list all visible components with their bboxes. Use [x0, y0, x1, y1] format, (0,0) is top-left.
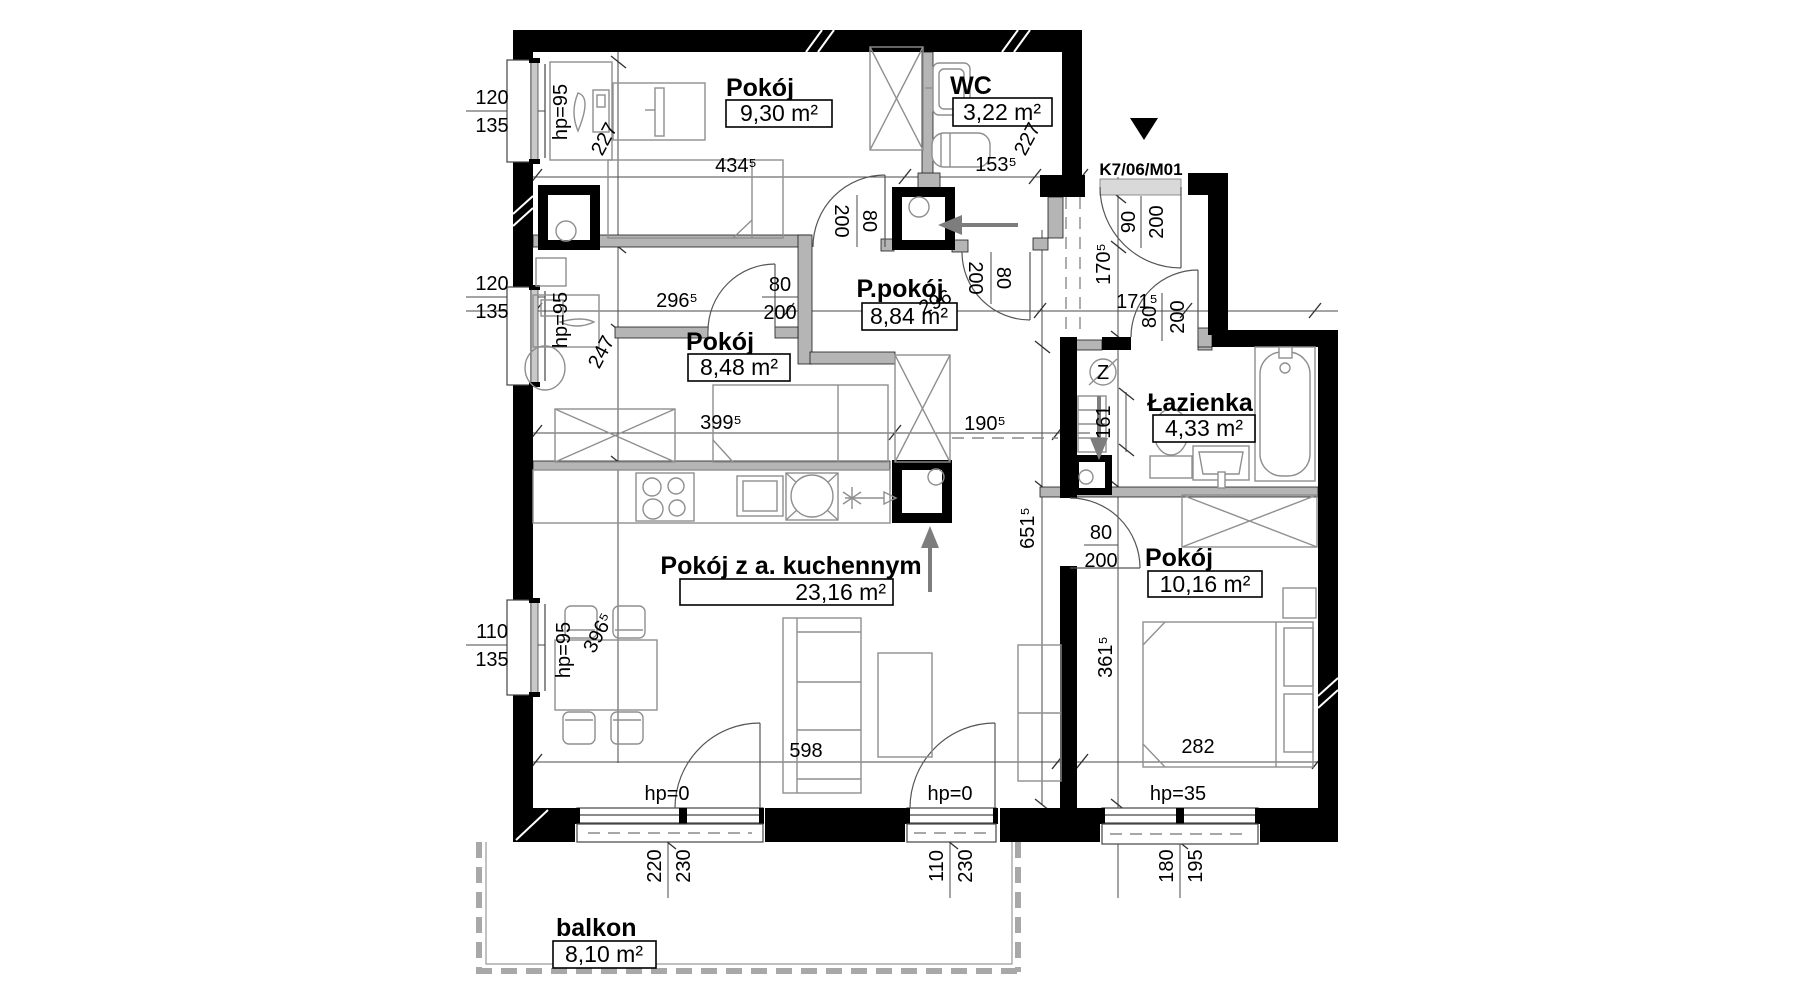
floor-plan-canvas: Z [0, 0, 1800, 1008]
svg-text:135: 135 [475, 301, 508, 323]
svg-text:110: 110 [926, 850, 948, 882]
door-room1-size-label: 80 200 [830, 195, 880, 247]
furniture-living [555, 606, 1061, 793]
svg-text:200: 200 [1167, 300, 1189, 333]
balcony-door-window-2 [905, 808, 998, 842]
balcony-door2-size-label: 110 230 [926, 849, 977, 882]
door-wc-size-label: 80 200 [964, 252, 1014, 304]
window2-size-label: 120 135 [475, 273, 508, 323]
room-label-living: Pokój z a. kuchennym 23,16 m² [660, 552, 921, 605]
svg-text:200: 200 [964, 261, 986, 294]
svg-text:200: 200 [763, 302, 796, 324]
dim-651: 651⁵ [1017, 507, 1039, 549]
room-label-wc: WC 3,22 m² [950, 72, 1052, 126]
svg-text:230: 230 [955, 849, 977, 882]
room-label-bedroom: Pokój 10,16 m² [1145, 544, 1262, 597]
window3-hp-label: hp=95 [553, 622, 575, 678]
bedroom-window [1100, 808, 1260, 844]
entrance-triangle-icon [1130, 118, 1158, 140]
svg-text:200: 200 [1146, 205, 1168, 238]
door-room2-size-label: 80 200 [762, 274, 798, 324]
shaft-hall [892, 187, 955, 250]
wardrobe-hall [895, 355, 950, 462]
kitchen-sink [786, 473, 838, 520]
room1-area: 9,30 m² [740, 100, 818, 126]
svg-text:80: 80 [1090, 522, 1112, 544]
svg-text:80: 80 [992, 267, 1014, 289]
window1-hp-label: hp=95 [550, 84, 572, 140]
wc-area: 3,22 m² [963, 99, 1041, 125]
living-name: Pokój z a. kuchennym [660, 552, 921, 580]
svg-text:220: 220 [644, 849, 666, 882]
room-label-bath: Łazienka 4,33 m² [1147, 389, 1255, 442]
window-left-2 [507, 285, 545, 387]
balcony-area: 8,10 m² [565, 941, 643, 967]
bedroom-window-size-label: 180 195 [1156, 849, 1207, 882]
svg-text:180: 180 [1156, 849, 1178, 882]
svg-text:195: 195 [1185, 849, 1207, 882]
balcony-door2-hp-label: hp=0 [927, 783, 972, 805]
gas-meter-icon: Z [1089, 359, 1117, 385]
svg-text:200: 200 [1084, 550, 1117, 572]
window3-size-label: 110 135 [475, 621, 508, 671]
room-label-balcony: balkon 8,10 m² [553, 914, 656, 968]
flow-arrow-up-icon [921, 526, 939, 592]
bath-name: Łazienka [1147, 389, 1254, 417]
dim-170: 170⁵ [1093, 243, 1115, 285]
dim-399: 399⁵ [700, 412, 742, 434]
sofa [783, 618, 861, 793]
svg-text:120: 120 [475, 87, 508, 109]
door-entrance-size-label: 90 200 [1118, 196, 1168, 248]
bedroom-name: Pokój [1145, 544, 1213, 572]
wardrobe-room2 [555, 409, 675, 462]
dim-153: 153⁵ [975, 154, 1017, 176]
door-bedroom-size-label: 80 200 [1084, 522, 1118, 572]
svg-text:80: 80 [769, 274, 791, 296]
dim-161: 161 [1093, 405, 1115, 438]
z-symbol: Z [1097, 362, 1109, 384]
dim-296p: 296⁵ [656, 290, 698, 312]
dim-598: 598 [789, 740, 822, 762]
furniture-bedroom [1143, 495, 1317, 767]
svg-text:80: 80 [1139, 306, 1161, 328]
room2-area: 8,48 m² [700, 354, 778, 380]
bedroom-window-hp-label: hp=35 [1150, 783, 1206, 805]
svg-text:135: 135 [475, 115, 508, 137]
kitchen-tap-icon [843, 487, 896, 509]
dim-190: 190⁵ [964, 413, 1006, 435]
dim-361: 361⁵ [1095, 636, 1117, 678]
unit-id-label: K7/06/M01 [1099, 160, 1182, 179]
balcony-door-window-1 [575, 808, 764, 842]
room-label-2: Pokój 8,48 m² [686, 328, 790, 381]
balcony-name: balkon [556, 914, 637, 942]
window2-hp-label: hp=95 [550, 292, 572, 348]
dim-434: 434⁵ [715, 155, 757, 177]
room-label-1: Pokój 9,30 m² [726, 74, 832, 127]
dim-282: 282 [1181, 736, 1214, 758]
shaft-left [538, 185, 600, 250]
wardrobe-bedroom [1182, 495, 1317, 547]
bath-area: 4,33 m² [1165, 415, 1243, 441]
bath-sink [1193, 446, 1249, 488]
floor-plan-screenshot: Z [0, 0, 1800, 1008]
svg-text:200: 200 [830, 204, 852, 237]
svg-text:120: 120 [475, 273, 508, 295]
kitchen-counter [533, 470, 896, 523]
window1-size-label: 120 135 [475, 87, 508, 137]
svg-text:90: 90 [1118, 211, 1140, 233]
svg-text:80: 80 [858, 210, 880, 232]
shaft-bath [1072, 455, 1112, 495]
room2-name: Pokój [686, 328, 754, 356]
shaft-kitchen [892, 460, 952, 523]
svg-text:230: 230 [673, 849, 695, 882]
balcony-door1-size-label: 220 230 [644, 849, 695, 882]
balcony-door1-hp-label: hp=0 [644, 783, 689, 805]
room1-name: Pokój [726, 74, 794, 102]
svg-text:110: 110 [476, 621, 508, 643]
wc-name: WC [950, 72, 992, 100]
bedroom-area: 10,16 m² [1160, 571, 1251, 597]
svg-text:135: 135 [475, 649, 508, 671]
living-area: 23,16 m² [795, 579, 886, 605]
dim-247: 247 [584, 332, 619, 372]
window-left-3 [507, 598, 545, 697]
wardrobe-room1 [870, 47, 923, 150]
